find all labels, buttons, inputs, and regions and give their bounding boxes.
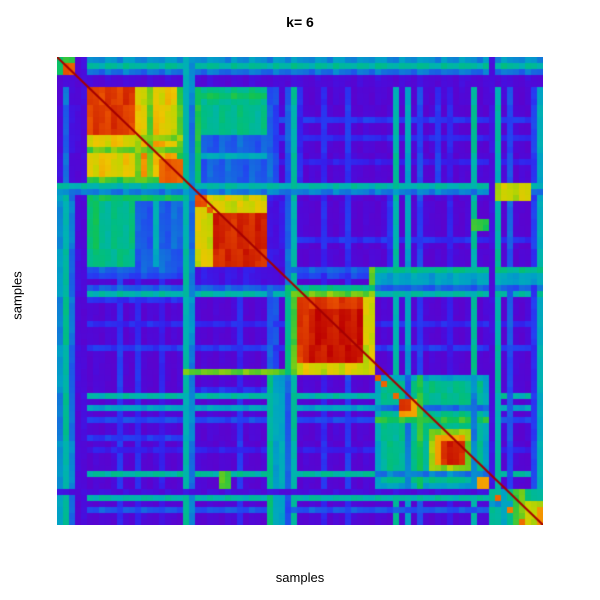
- x-axis-label: samples: [57, 570, 543, 585]
- consensus-heatmap-plot: [57, 57, 543, 525]
- consensus-matrix-figure: k= 6 samples samples: [0, 0, 600, 600]
- chart-title: k= 6: [57, 14, 543, 30]
- y-axis-label: samples: [10, 53, 25, 539]
